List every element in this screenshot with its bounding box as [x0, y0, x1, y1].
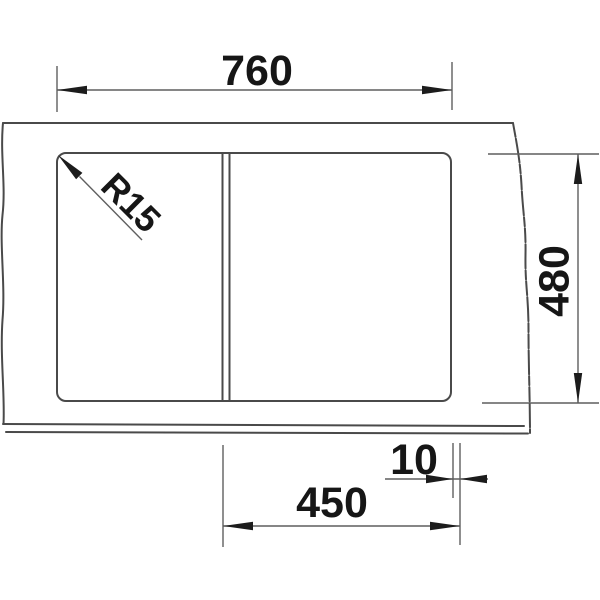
- radius-callout-r15: R15: [58, 155, 169, 240]
- radius-label: R15: [93, 165, 169, 241]
- break-line-left: [2, 123, 4, 424]
- sink-dimension-drawing: 760 480 450 10 R15: [0, 0, 600, 600]
- arrowhead-up-icon: [574, 154, 582, 184]
- dimension-bowl-label: 450: [296, 479, 368, 527]
- arrowhead-left-icon: [223, 522, 253, 530]
- break-line-right: [513, 123, 530, 433]
- dimension-offset-label: 10: [390, 436, 438, 484]
- arrowhead-left-icon: [57, 86, 87, 94]
- arrowhead-inward-left-icon: [460, 475, 487, 483]
- leader-arrowhead-icon: [58, 155, 82, 179]
- sink-bottom-edge-inner: [6, 432, 528, 434]
- arrowhead-right-icon: [430, 522, 460, 530]
- arrowhead-right-icon: [422, 86, 452, 94]
- dimension-width-label: 760: [221, 47, 293, 95]
- dimension-depth-label: 480: [531, 245, 579, 317]
- dimension-width-760: 760: [57, 47, 452, 112]
- dimension-depth-480: 480: [482, 154, 599, 403]
- dimension-offset-10: 10: [385, 436, 488, 498]
- sink-bottom-edge-outer: [3, 424, 524, 426]
- arrowhead-down-icon: [574, 373, 582, 403]
- technical-drawing-page: 760 480 450 10 R15: [0, 0, 600, 600]
